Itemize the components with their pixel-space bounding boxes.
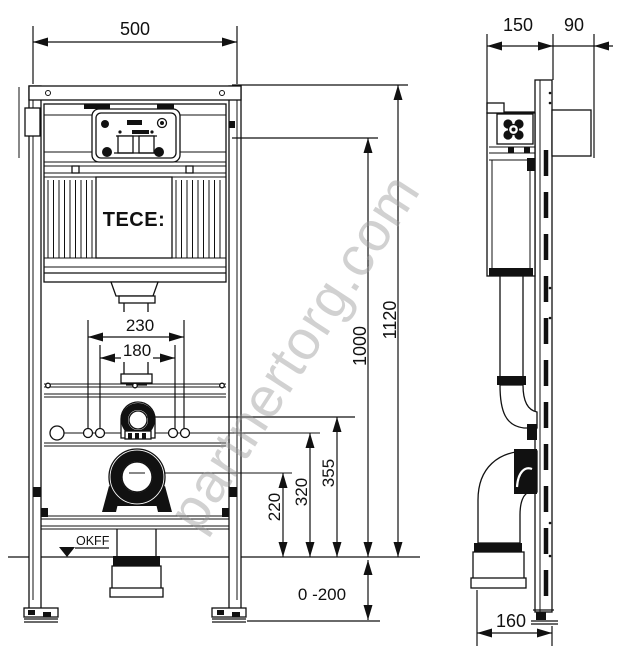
installation-diagram: TECE: [0,0,620,656]
foot-left [24,608,58,622]
foot-right [212,608,246,622]
cistern-side [487,103,535,276]
drain-elbow [471,449,537,588]
floor-mark-label: OKFF [76,534,110,548]
dim-fixing-height-label: 320 [292,478,311,506]
dim-supply-height-label: 355 [319,459,338,487]
fixing-hole-large [50,426,64,440]
dim-frame-depth-label: 150 [503,15,533,35]
dim-pipe-inner-label: 180 [123,341,151,360]
fixing-bolt [181,429,190,438]
wall-bracket [552,110,591,156]
dim-total-height-label: 1120 [380,301,400,340]
mounting-rail [535,80,552,612]
fixing-bolt [96,429,105,438]
water-supply-fitting [121,402,155,439]
fixing-bolt [84,429,93,438]
leg-clamp-left [33,487,41,497]
fixing-bolt [169,429,178,438]
access-panel [92,109,180,162]
dim-pipe-outer-label: 230 [126,316,154,335]
brand-logo: TECE: [103,209,166,231]
dim-bracket-depth-label: 90 [564,15,584,35]
side-view: 150 90 160 [471,15,613,646]
drain-pipe [110,529,163,597]
technical-drawing-page: TECE: [0,0,620,656]
dim-floor-range-label: 0 -200 [298,585,346,604]
dim-outlet-offset-label: 160 [496,611,526,631]
floor-mark: OKFF [59,534,110,557]
dim-outlet-height-label: 220 [265,493,284,521]
flush-pipe-side [497,276,537,440]
cistern: TECE: [44,104,226,282]
wall-anchor-tab [25,108,40,136]
dim-width-label: 500 [120,19,150,39]
dim-actuator-height-label: 1000 [350,326,370,366]
top-rail [29,86,241,100]
